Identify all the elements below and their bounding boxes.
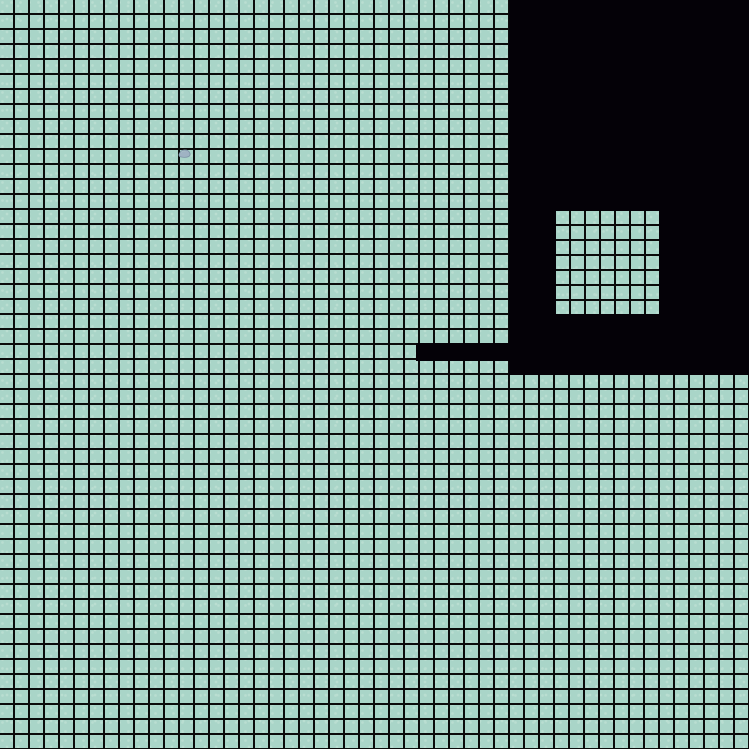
pebble-icon: [178, 148, 191, 158]
void-region-main: [509, 0, 749, 375]
pebble-sprite[interactable]: [178, 148, 191, 158]
void-region-bar: [416, 343, 509, 361]
clearing-patch[interactable]: [556, 211, 659, 314]
map-viewport: [0, 0, 749, 749]
